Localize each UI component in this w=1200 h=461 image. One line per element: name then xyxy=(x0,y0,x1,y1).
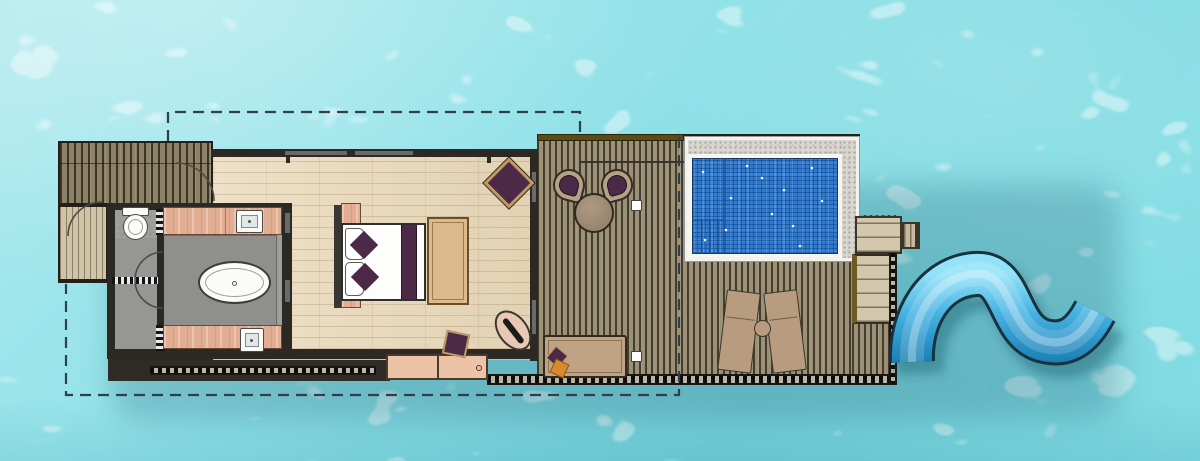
water-depth-band xyxy=(0,400,1200,461)
window-inset-bath-2 xyxy=(285,280,290,302)
toilet-bowl xyxy=(123,214,148,240)
deck-light-upper xyxy=(631,200,642,211)
deck-olive-trim xyxy=(537,134,684,141)
deck-right-edge xyxy=(889,253,897,383)
double-bed xyxy=(341,223,426,301)
cabinet-divider xyxy=(437,356,439,378)
entry-deck-step-line xyxy=(60,163,211,164)
window-inset-bath-1 xyxy=(285,213,290,233)
sink-bottom xyxy=(240,328,264,352)
window-inset-north-1 xyxy=(285,151,347,155)
window-inset-north-2 xyxy=(355,151,413,155)
lagoon-floor-plan xyxy=(0,0,1200,461)
door-track-tick-2 xyxy=(487,157,491,163)
entry-deck-lower xyxy=(58,205,108,283)
pool-stone-top xyxy=(688,140,856,154)
cabinet-knob xyxy=(476,365,482,371)
sink-top xyxy=(236,210,263,233)
round-table xyxy=(574,193,614,233)
side-table xyxy=(754,320,771,337)
bed-runner xyxy=(401,225,417,299)
pool-stone-right xyxy=(842,140,856,258)
vanity-top-divider xyxy=(225,208,226,234)
deck-light-lower xyxy=(631,351,642,362)
console-cabinet xyxy=(386,354,488,380)
bathtub xyxy=(198,261,271,304)
bathtub-drain xyxy=(232,281,237,286)
platform-step xyxy=(902,222,920,249)
stool xyxy=(442,330,470,358)
vanity-bottom xyxy=(163,325,282,349)
sink-bottom-faucet xyxy=(250,339,253,342)
foot-bench-inner xyxy=(432,222,464,300)
lounger-right-break xyxy=(769,316,797,320)
entry-deck-upper xyxy=(58,141,213,205)
shower-zone xyxy=(115,238,157,350)
south-edge-checker xyxy=(150,366,376,375)
foot-bench xyxy=(427,217,469,305)
papasan-right-cushion xyxy=(605,173,629,197)
door-track-tick-1 xyxy=(286,157,290,163)
lounger-left-break xyxy=(727,316,755,320)
slide-platform xyxy=(855,216,902,254)
mirror-stripe xyxy=(502,317,525,344)
door-hatch-middle xyxy=(112,277,158,284)
toilet-bowl-inner xyxy=(128,219,143,235)
pool-water xyxy=(692,158,838,254)
vanity-top xyxy=(163,207,282,235)
headboard xyxy=(334,205,341,308)
papasan-left-cushion xyxy=(557,173,581,197)
window-inset-east-2 xyxy=(532,300,536,334)
sink-top-faucet xyxy=(248,220,251,223)
window-inset-east-1 xyxy=(532,172,536,202)
